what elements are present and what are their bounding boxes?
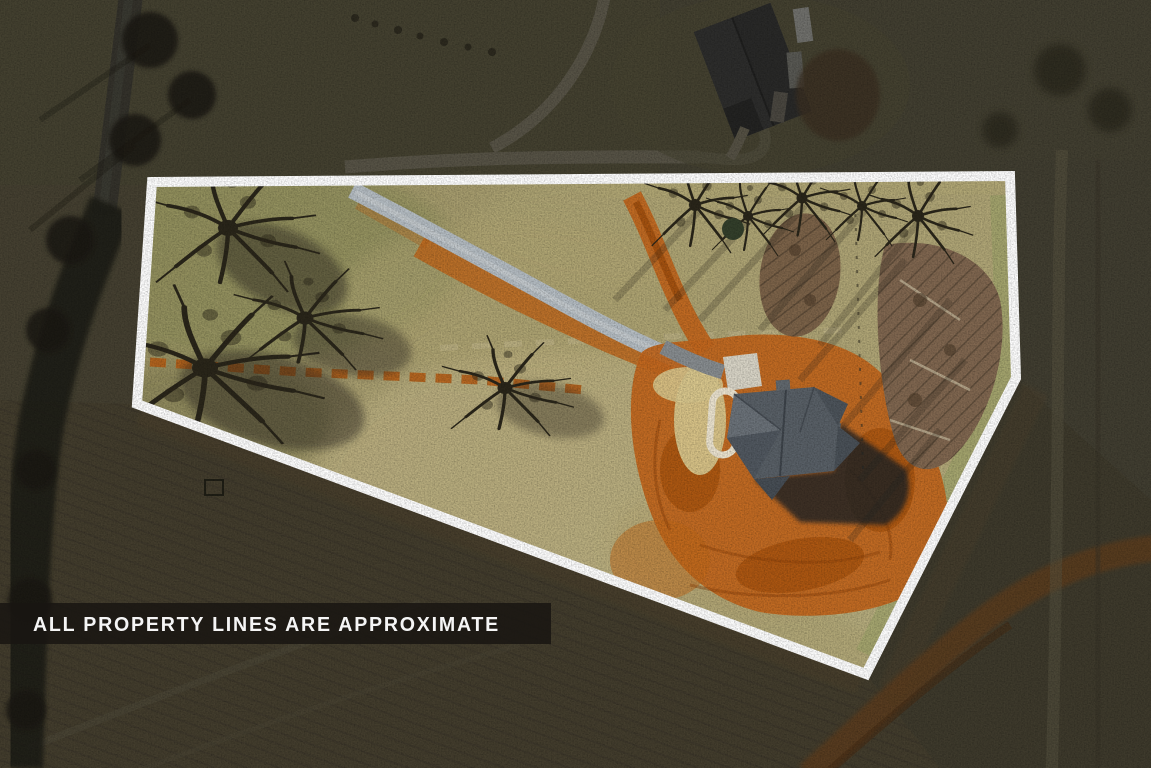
banner-label: ALL PROPERTY LINES ARE APPROXIMATE: [33, 614, 500, 636]
disclaimer-banner: ALL PROPERTY LINES ARE APPROXIMATE: [0, 603, 551, 644]
photo-grain: [0, 0, 1151, 768]
aerial-scene: ALL PROPERTY LINES ARE APPROXIMATE: [0, 0, 1151, 768]
aerial-property-photo: ALL PROPERTY LINES ARE APPROXIMATE: [0, 0, 1151, 768]
